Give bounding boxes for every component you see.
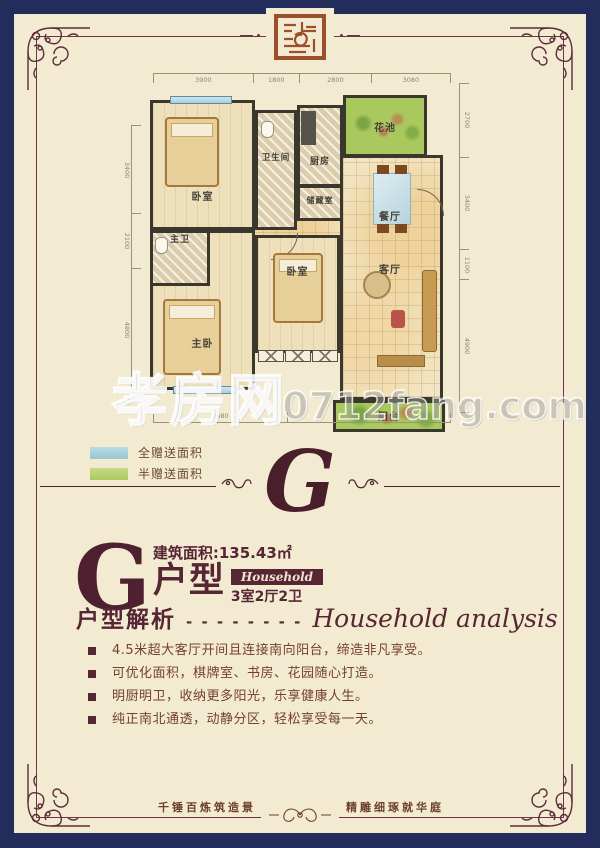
bullet-square-icon bbox=[88, 647, 96, 655]
bed-graphic bbox=[165, 117, 219, 187]
armchair-graphic bbox=[391, 310, 405, 328]
dimension-label: 1800 bbox=[254, 76, 299, 84]
list-item: 可优化面积，棋牌室、书房、花园随心打造。 bbox=[88, 667, 431, 681]
toilet-graphic bbox=[261, 121, 274, 138]
window-hatch-graphic bbox=[258, 350, 284, 362]
dimension-label: 2800 bbox=[300, 76, 371, 84]
emblem-side-dot bbox=[340, 34, 343, 37]
scroll-ornament-icon bbox=[348, 476, 380, 496]
scroll-ornament-icon bbox=[220, 476, 252, 496]
dimension-label: 3400 bbox=[123, 161, 131, 178]
bullet-square-icon bbox=[88, 693, 96, 701]
emblem-side-dash bbox=[240, 35, 253, 36]
dimension-chain-left: 3400 2100 4800 bbox=[131, 125, 141, 393]
unit-type-label: 户型 bbox=[153, 564, 225, 598]
dimension-label: 2100 bbox=[123, 233, 131, 250]
chair-graphic bbox=[395, 165, 407, 174]
dimension-chain-right: 2700 3400 1100 4900 bbox=[459, 83, 469, 413]
list-item: 纯正南北通透，动静分区，轻松享受每一天。 bbox=[88, 713, 431, 727]
window-hatch-graphic bbox=[312, 350, 338, 362]
watermark-site-name: 孝房网 bbox=[112, 376, 286, 428]
analysis-heading: 户型解析 - - - - - - - - Household analysis bbox=[76, 600, 558, 634]
dimension-label: 2700 bbox=[463, 112, 471, 129]
divider-line bbox=[40, 486, 216, 487]
room-label: 卧室 bbox=[255, 263, 340, 278]
dimension-segment: 3900 bbox=[153, 74, 253, 83]
analysis-dashes: - - - - - - - - bbox=[186, 613, 302, 631]
footer-scroll-ornament-icon bbox=[261, 806, 339, 828]
dimension-label: 4900 bbox=[463, 338, 471, 355]
dimension-label: 3080 bbox=[372, 76, 450, 84]
chair-graphic bbox=[377, 224, 389, 233]
dimension-segment: 3400 bbox=[460, 157, 469, 249]
analysis-title: 户型解析 bbox=[76, 600, 176, 634]
bullet-text: 纯正南北通透，动静分区，轻松享受每一天。 bbox=[112, 713, 382, 727]
chair-graphic bbox=[377, 165, 389, 174]
stove-graphic bbox=[301, 111, 316, 145]
dimension-label: 1100 bbox=[463, 256, 471, 273]
dimension-segment: 3400 bbox=[132, 125, 141, 213]
room-label: 厨房 bbox=[297, 154, 343, 167]
bullet-text: 4.5米超大客厅开间且连接南向阳台，缔造非凡享受。 bbox=[112, 644, 431, 658]
footer-slogan-left: 千锤百炼筑造景 bbox=[158, 799, 256, 815]
dimension-label: 4800 bbox=[123, 322, 131, 339]
room-label: 餐厅 bbox=[340, 208, 440, 223]
brand-seal-icon bbox=[266, 8, 334, 66]
bullet-square-icon bbox=[88, 670, 96, 678]
dimension-segment: 1100 bbox=[460, 249, 469, 280]
dimension-label: 3900 bbox=[154, 76, 253, 84]
room-label: 卧室 bbox=[150, 188, 255, 203]
dimension-segment: 2700 bbox=[460, 83, 469, 157]
window-hatch-graphic bbox=[285, 350, 311, 362]
section-divider: G bbox=[40, 444, 560, 528]
pillow-graphic bbox=[169, 305, 215, 319]
list-item: 明厨明卫，收纳更多阳光，乐享健康人生。 bbox=[88, 690, 431, 704]
household-badge: Household bbox=[231, 569, 323, 585]
dimension-segment: 3080 bbox=[371, 74, 451, 83]
list-item: 4.5米超大客厅开间且连接南向阳台，缔造非凡享受。 bbox=[88, 644, 431, 658]
chair-graphic bbox=[395, 224, 407, 233]
divider-line bbox=[384, 486, 560, 487]
watermark: 孝房网 0712fang.com bbox=[112, 376, 587, 428]
corner-flourish-icon bbox=[24, 760, 94, 830]
divider-letter: G bbox=[264, 443, 336, 521]
built-area-label: 建筑面积:135.43㎡ bbox=[153, 542, 323, 563]
watermark-site-url: 0712fang.com bbox=[282, 386, 587, 426]
dimension-segment: 1800 bbox=[253, 74, 299, 83]
dimension-label: 3400 bbox=[463, 195, 471, 212]
analysis-bullet-list: 4.5米超大客厅开间且连接南向阳台，缔造非凡享受。 可优化面积，棋牌室、书房、花… bbox=[88, 644, 431, 736]
room-label: 主卧 bbox=[150, 335, 255, 350]
dimension-segment: 2100 bbox=[132, 213, 141, 268]
corner-flourish-icon bbox=[24, 24, 94, 94]
dimension-segment: 2800 bbox=[299, 74, 371, 83]
room-label: 花池 bbox=[343, 119, 427, 134]
bullet-text: 明厨明卫，收纳更多阳光，乐享健康人生。 bbox=[112, 690, 369, 704]
room-label: 客厅 bbox=[340, 261, 440, 276]
emblem-side-dash bbox=[347, 35, 360, 36]
pillow-graphic bbox=[171, 123, 213, 137]
footer-slogan-right: 精雕细琢就华庭 bbox=[346, 799, 444, 815]
dimension-chain-top: 3900 1800 2800 3080 bbox=[153, 73, 451, 83]
room-label: 储藏室 bbox=[295, 195, 345, 206]
sofa-graphic bbox=[422, 270, 437, 352]
bullet-square-icon bbox=[88, 716, 96, 724]
corner-flourish-icon bbox=[506, 760, 576, 830]
room-label: 卫生间 bbox=[253, 151, 299, 163]
analysis-subtitle: Household analysis bbox=[312, 604, 557, 633]
tv-cabinet-graphic bbox=[377, 355, 425, 367]
room-label: 主卫 bbox=[150, 232, 210, 245]
emblem-side-dot bbox=[257, 34, 260, 37]
bullet-text: 可优化面积，棋牌室、书房、花园随心打造。 bbox=[112, 667, 382, 681]
corner-flourish-icon bbox=[506, 24, 576, 94]
window-graphic bbox=[170, 96, 232, 104]
